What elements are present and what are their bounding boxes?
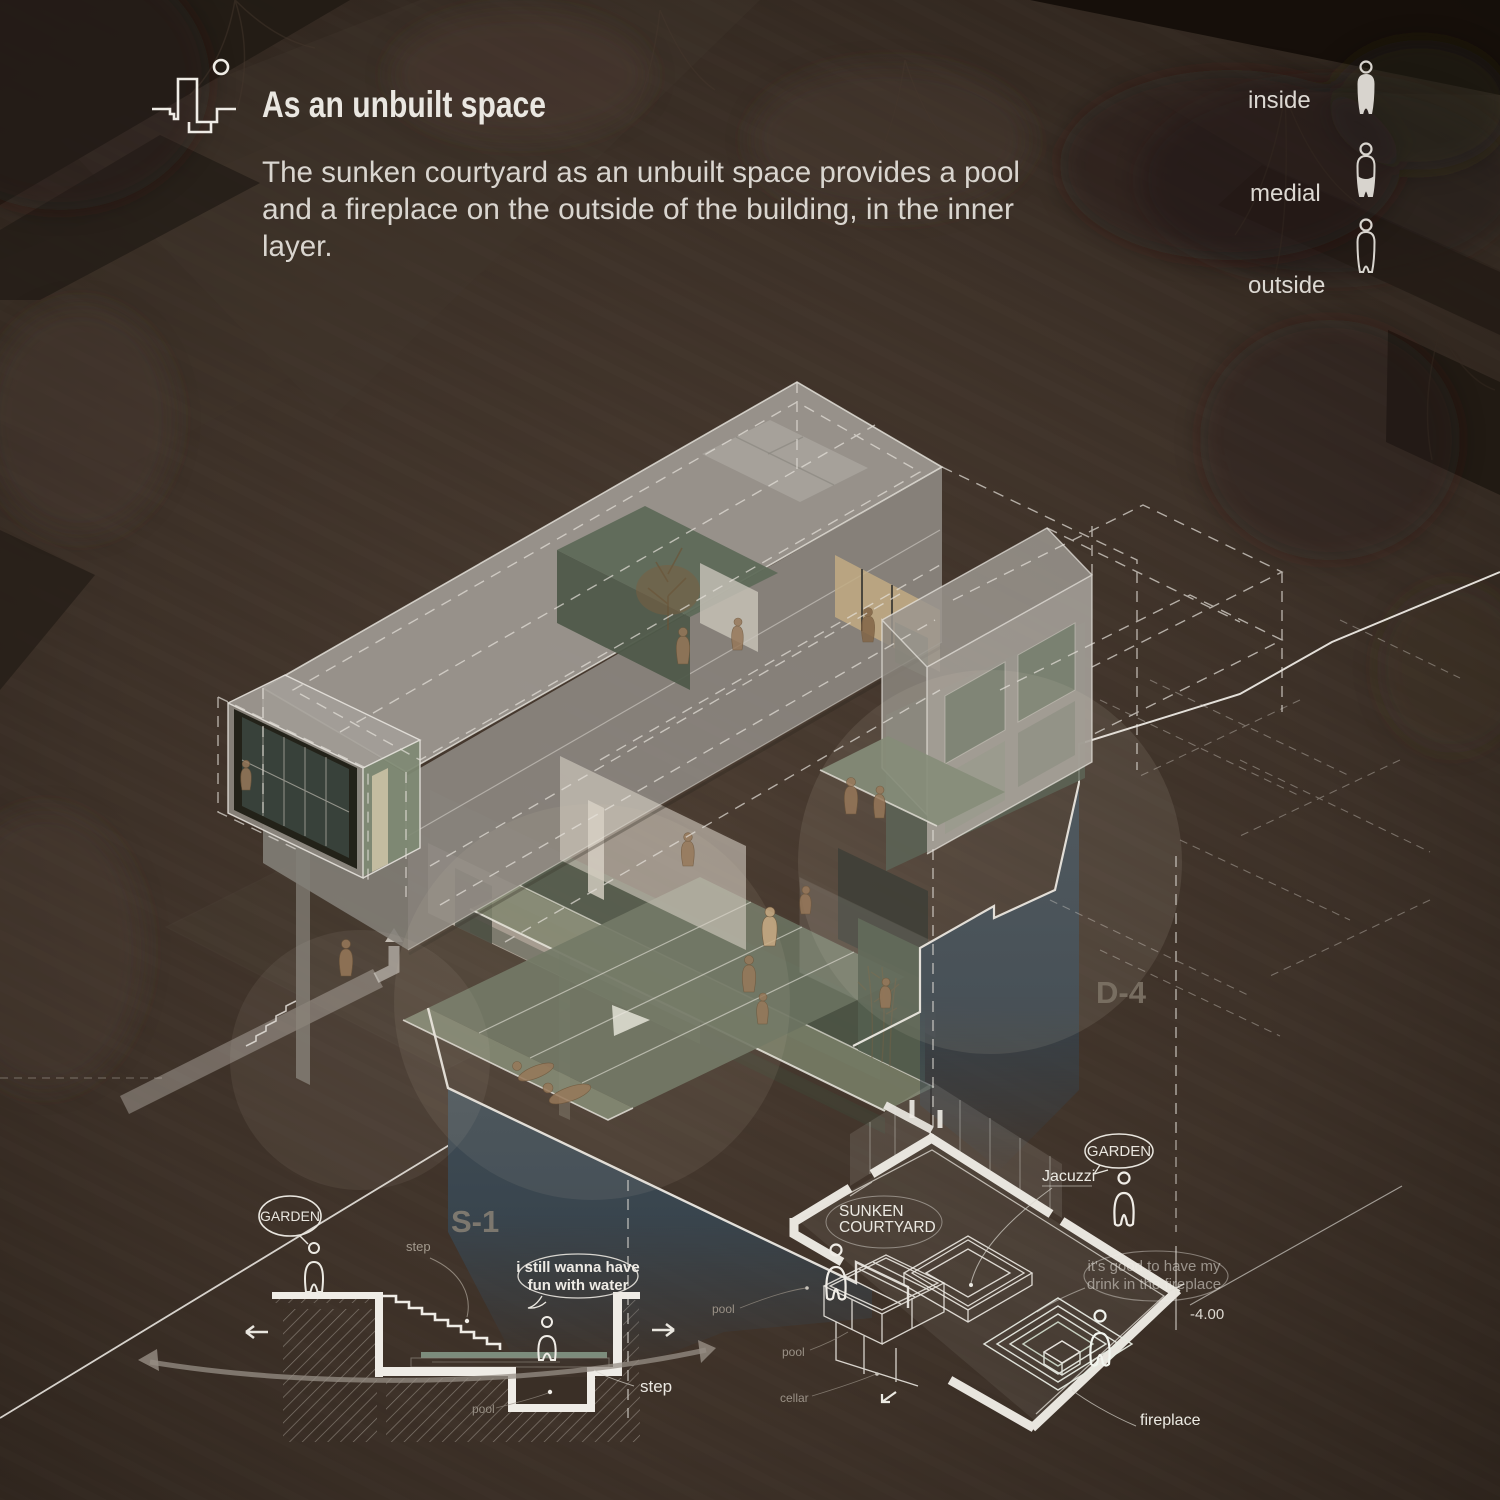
svg-text:GARDEN: GARDEN bbox=[260, 1208, 320, 1224]
svg-text:and a fireplace on the outside: and a fireplace on the outside of the bu… bbox=[262, 193, 1014, 226]
svg-text:step: step bbox=[640, 1377, 672, 1396]
svg-text:step: step bbox=[406, 1239, 431, 1254]
svg-text:COURTYARD: COURTYARD bbox=[839, 1219, 936, 1236]
svg-text:pool: pool bbox=[472, 1402, 495, 1416]
svg-text:layer.: layer. bbox=[262, 230, 333, 263]
svg-text:D-4: D-4 bbox=[1096, 975, 1147, 1010]
svg-text:pool: pool bbox=[712, 1302, 735, 1316]
svg-text:fun with water: fun with water bbox=[528, 1277, 629, 1294]
svg-text:The sunken courtyard as an unb: The sunken courtyard as an unbuilt space… bbox=[262, 156, 1020, 189]
svg-text:fireplace: fireplace bbox=[1140, 1412, 1201, 1429]
svg-text:pool: pool bbox=[782, 1345, 805, 1359]
svg-text:i still wanna have: i still wanna have bbox=[516, 1259, 639, 1276]
svg-text:cellar: cellar bbox=[780, 1391, 809, 1405]
svg-text:SUNKEN: SUNKEN bbox=[839, 1203, 904, 1220]
svg-text:-4.00: -4.00 bbox=[1190, 1306, 1224, 1323]
svg-text:GARDEN: GARDEN bbox=[1087, 1143, 1151, 1160]
svg-text:medial: medial bbox=[1250, 180, 1321, 207]
svg-text:As an unbuilt space: As an unbuilt space bbox=[262, 84, 546, 125]
svg-text:inside: inside bbox=[1248, 87, 1311, 114]
svg-text:S-1: S-1 bbox=[451, 1204, 499, 1239]
svg-text:outside: outside bbox=[1248, 272, 1325, 299]
